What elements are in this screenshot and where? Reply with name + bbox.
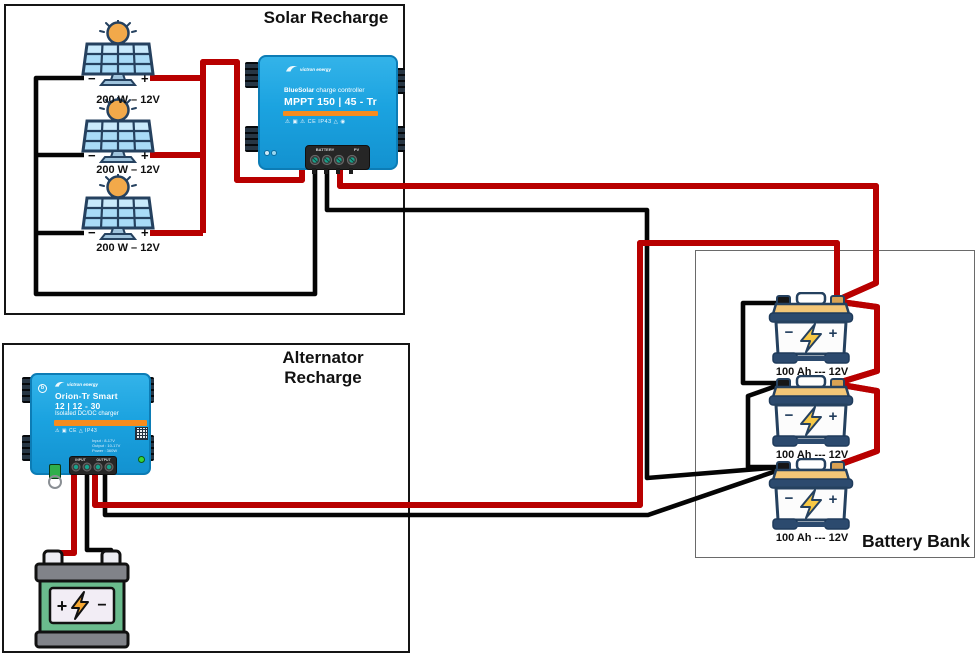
panel-plus-sign: + [141,148,149,163]
orion-subtitle: Isolated DC/DC charger [55,411,119,417]
battery-minus-sign: − [785,324,794,341]
model-text: MPPT 150 | 45 - Tr [284,96,377,108]
brand-text: victron energy [300,67,331,72]
panel-base [101,80,135,85]
panel-1-label: 200 W – 12V [58,94,198,106]
bank-battery-2: − + [768,375,854,451]
spec-lines: Input : 8-17V Output : 10-17V Power : 36… [92,438,120,453]
battery-foot [773,519,797,529]
starter-battery: + − [32,548,132,650]
panel-plus-sign: + [141,225,149,240]
battery-foot [773,436,797,446]
certification-icons: ⚠ ▣ CE △ IP43 [55,428,97,434]
product-line: BlueSolar charge controller [284,87,365,94]
orion-body: b victron energy Orion-Tr Smart 12 | 12 … [30,373,151,475]
certification-icons: ⚠ ▣ ⚠ CE IP43 △ ◉ [285,119,346,125]
orange-stripe [283,111,378,116]
terminal-stub [312,168,316,174]
bank-battery-1: − + [768,292,854,368]
panel-2-label: 200 W – 12V [58,164,198,176]
panel-3-label: 200 W – 12V [58,242,198,254]
panel-plus-sign: + [141,71,149,86]
mppt-terminal-block: BATTERY PV [305,145,370,170]
status-led [271,150,277,156]
qr-code-icon [135,427,148,440]
bank-battery-3: − + [768,458,854,534]
bluetooth-icon: b [38,384,47,393]
orion-terminal-block: INPUT OUTPUT [69,456,117,475]
victron-logo: victron energy [286,66,331,72]
orion-dcdc-charger: b victron energy Orion-Tr Smart 12 | 12 … [22,371,154,483]
battery-plus-sign: + [829,325,838,342]
terminal-stub [349,168,353,174]
panel-minus-sign: − [88,225,96,240]
solar-panel-2: − + [80,97,156,165]
bank-battery-1-label: 100 Ah --- 12V [748,366,876,378]
battery-foot-bar [795,439,827,444]
power-led [138,456,145,463]
battery-plus-sign: + [57,596,68,616]
product-suffix: charge controller [314,87,364,94]
battery-handle [797,293,825,304]
battery-foot [773,353,797,363]
battery-foot-bar [795,522,827,527]
bank-battery-2-label: 100 Ah --- 12V [748,449,876,461]
victron-swoosh-icon [286,66,298,72]
product-name: BlueSolar [284,87,314,94]
orange-stripe [54,420,147,426]
battery-base-bar [36,632,128,647]
battery-foot [825,519,849,529]
bank-battery-3-label: 100 Ah --- 12V [748,532,876,544]
spec-power: Power : 360W [92,448,120,453]
alternator-recharge-title: Alternator Recharge [243,348,403,388]
terminal-stub [336,168,340,174]
victron-swoosh-icon [55,382,65,387]
orion-name: Orion-Tr Smart [55,391,118,401]
terminal-stub [324,168,328,174]
terminal-screws [306,146,369,169]
battery-foot-bar [795,356,827,361]
mppt-body: victron energy BlueSolar charge controll… [258,55,398,170]
solar-recharge-title: Solar Recharge [250,8,402,28]
victron-logo: victron energy [55,382,98,387]
wiring-diagram: Solar Recharge Alternator Recharge Batte… [0,0,980,656]
panel-base [101,234,135,239]
mounting-tab [245,62,259,88]
sun-icon [108,23,129,44]
brand-text: victron energy [67,382,98,387]
battery-minus-sign: − [97,597,106,614]
panel-base [101,157,135,162]
battery-minus-sign: − [785,407,794,424]
status-led [264,150,270,156]
wire-loop [48,475,62,489]
battery-top-bar [36,564,128,581]
solar-panel-1: − + [80,20,156,88]
solar-panel-3: − + [80,174,156,242]
panel-minus-sign: − [88,71,96,86]
battery-plus-sign: + [829,408,838,425]
battery-plus-sign: + [829,491,838,508]
battery-foot [825,353,849,363]
sun-icon [108,177,129,198]
mounting-tab [245,126,259,152]
orion-model: 12 | 12 - 30 [55,401,100,411]
mppt-charge-controller: victron energy BlueSolar charge controll… [245,52,405,172]
battery-minus-sign: − [785,490,794,507]
battery-foot [825,436,849,446]
panel-minus-sign: − [88,148,96,163]
terminal-screws [70,457,116,474]
